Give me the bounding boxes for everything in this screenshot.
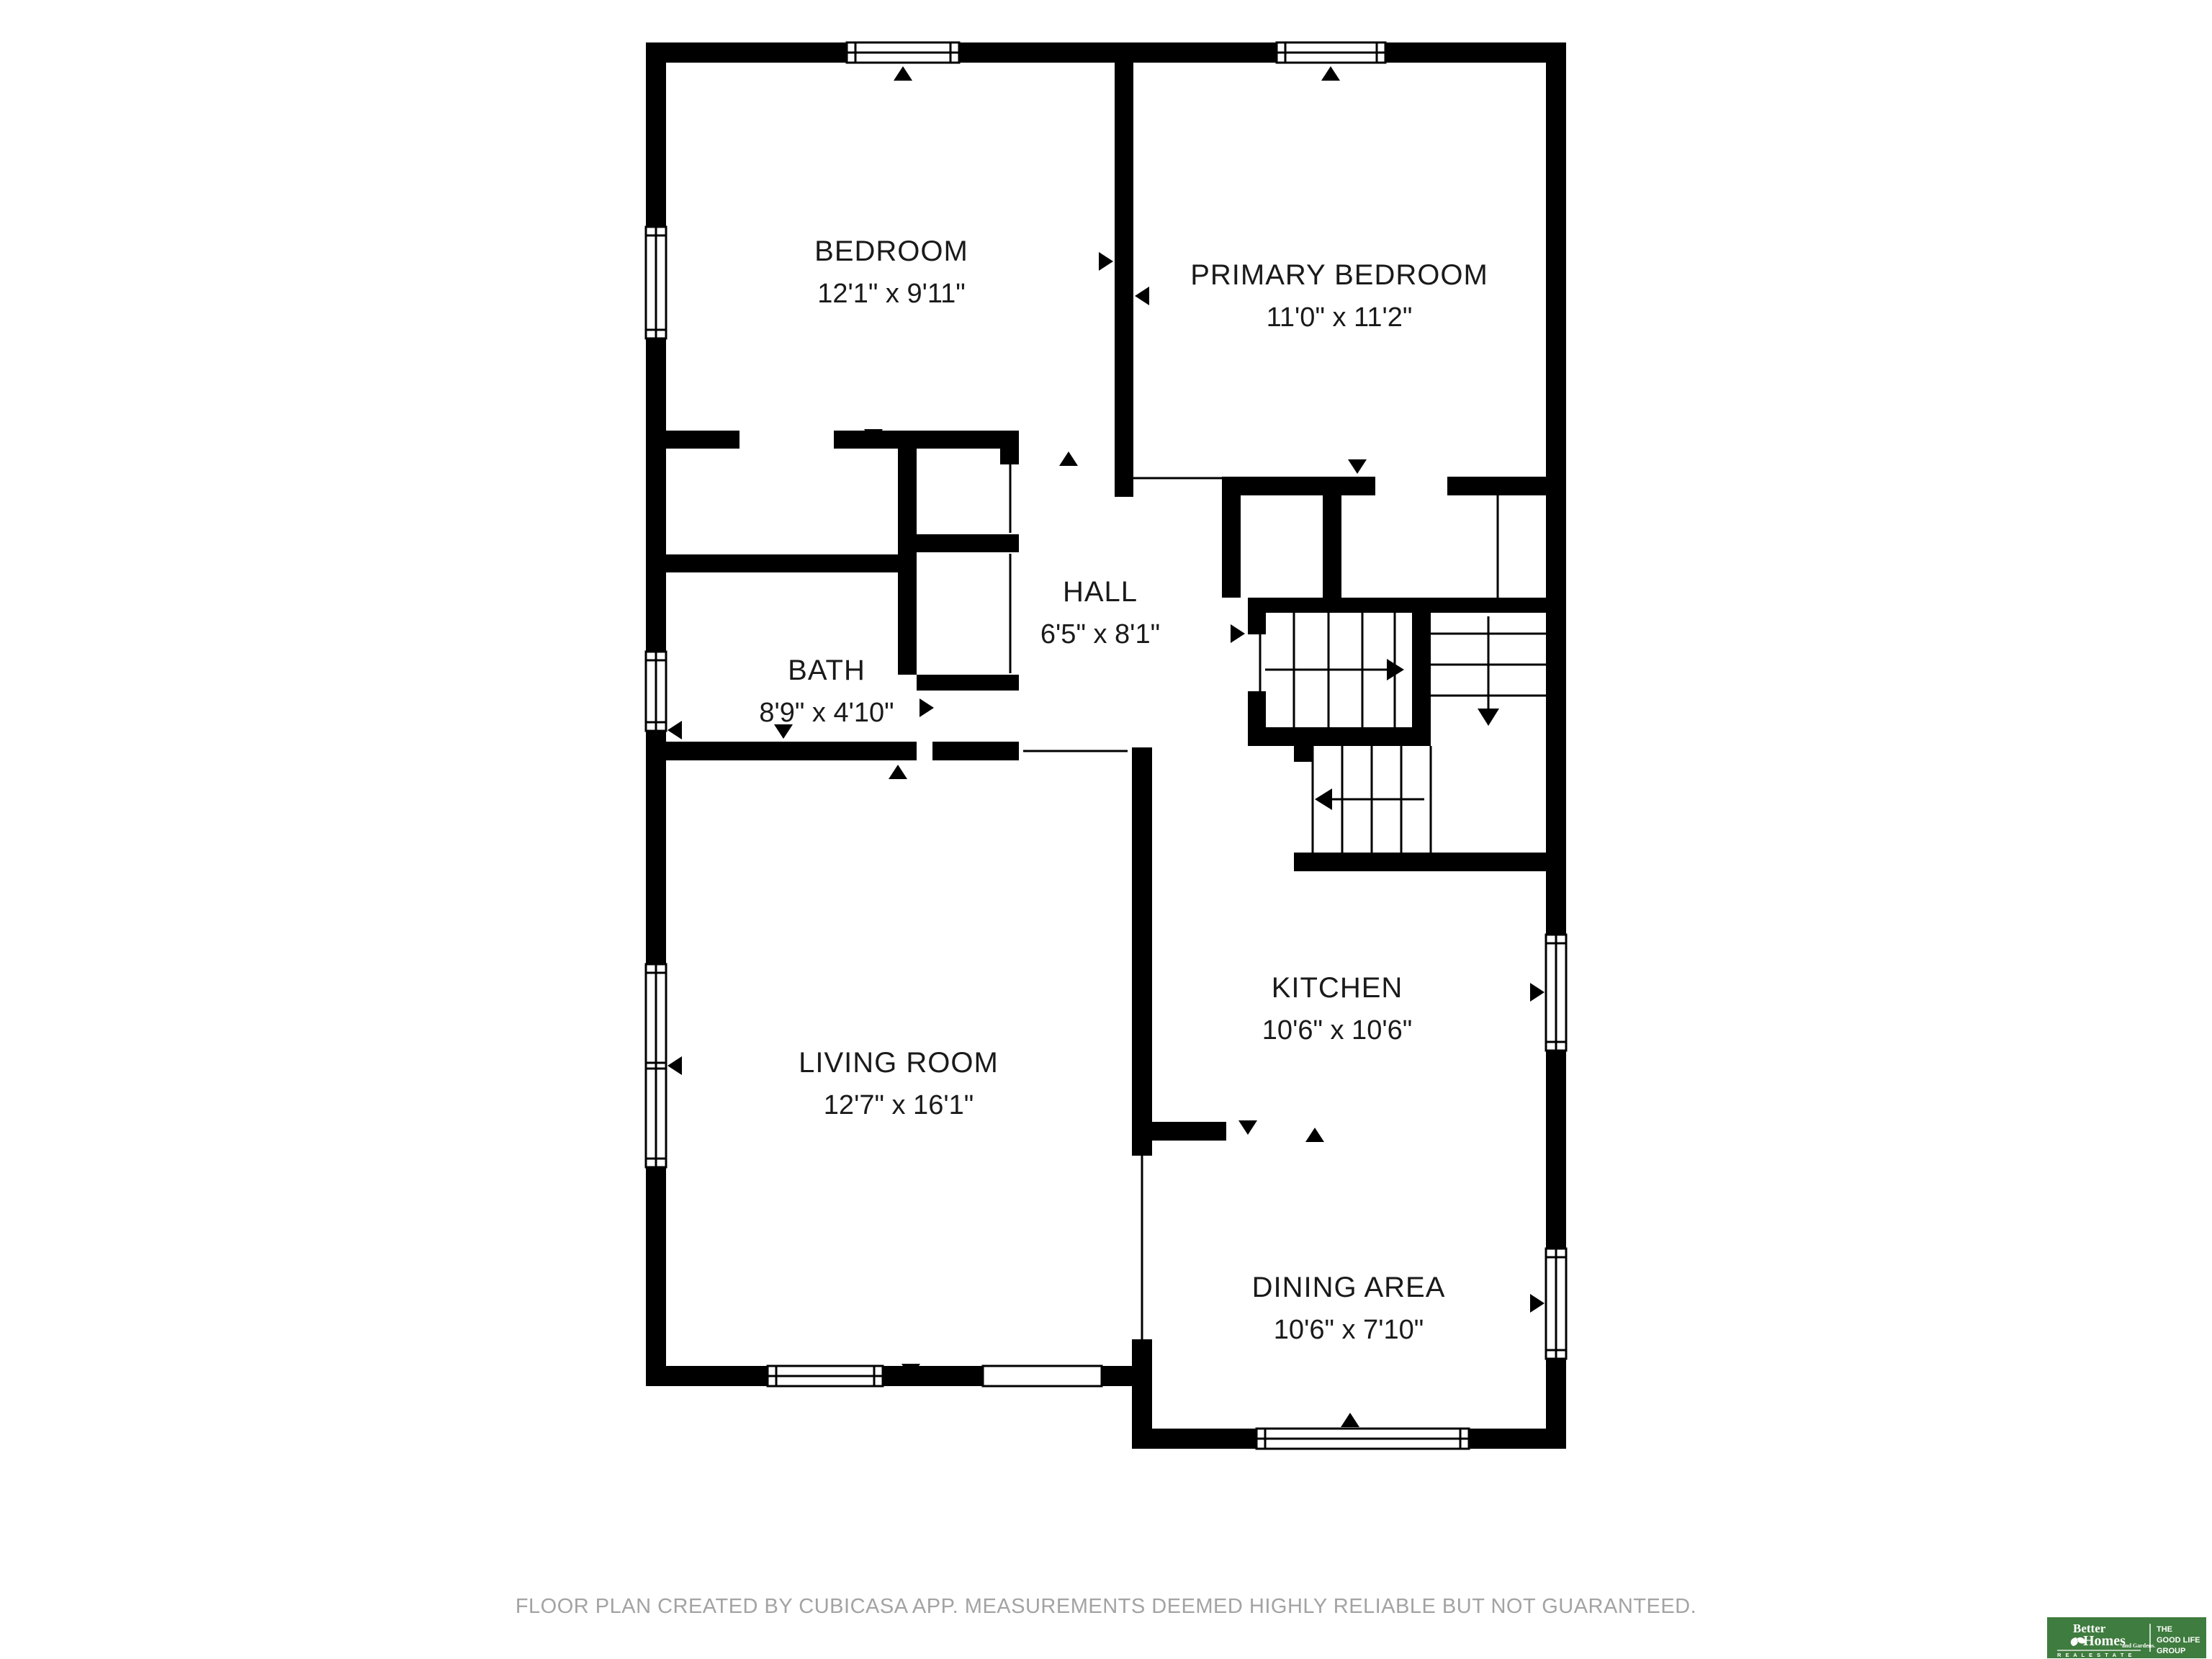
room-name: DINING AREA [1252,1272,1446,1303]
room-label-hall: HALL 6'5" x 8'1" [1040,576,1160,649]
door-marker-icon [1530,1294,1545,1313]
footer-disclaimer: FLOOR PLAN CREATED BY CUBICASA APP. MEAS… [516,1595,1696,1618]
door-marker-icon [667,721,682,739]
door-marker-icon [1348,459,1367,474]
door-marker-icon [1059,451,1078,466]
room-label-bedroom: BEDROOM 12'1" x 9'11" [814,235,968,309]
door-marker-icon [1238,1120,1257,1135]
stairs-up-flight [1260,612,1404,727]
window-bottom-living [768,1366,883,1386]
window-bottom-living-wide [983,1366,1102,1386]
room-name: KITCHEN [1272,972,1403,1004]
window-right-kitchen [1546,935,1566,1051]
window-right-dining [1546,1249,1566,1359]
logo-brand-line2: Homes [2083,1633,2126,1649]
room-label-primary-bedroom: PRIMARY BEDROOM 11'0" x 11'2" [1190,259,1488,333]
room-label-kitchen: KITCHEN 10'6" x 10'6" [1262,972,1412,1046]
room-label-living-room: LIVING ROOM 12'7" x 16'1" [799,1047,999,1120]
door-marker-icon [1231,624,1245,643]
door-marker-icon [889,765,907,779]
stairs-left-arrow-icon [1315,788,1332,810]
door-marker-icon [920,698,934,717]
window-top-bedroom [847,42,959,63]
brand-logo: Better Homes and Gardens. R E A L E S T … [2047,1617,2206,1658]
door-marker-icon [1321,66,1340,81]
window-left-living-double [646,964,666,1167]
door-marker-icon [1341,1413,1359,1427]
room-dimensions: 11'0" x 11'2" [1267,302,1413,333]
window-top-primary [1277,42,1385,63]
door-marker-icon [1099,252,1113,271]
logo-group-line2: GOOD LIFE [2157,1636,2200,1645]
stairs-down-upper-flight [1431,616,1546,726]
window-left-bath [646,652,666,731]
room-name: HALL [1063,576,1138,608]
stairs-lower-flight [1313,746,1431,853]
window-left-bedroom [646,227,666,338]
door-marker-icon [894,66,912,81]
stairs-down-arrow-icon [1478,709,1499,726]
room-name: BEDROOM [814,235,968,267]
room-dimensions: 12'7" x 16'1" [824,1090,974,1120]
door-marker-icon [667,1056,682,1075]
logo-brand-tagline: R E A L E S T A T E [2057,1652,2134,1658]
window-bottom-dining [1256,1429,1469,1449]
floorplan-canvas: BEDROOM 12'1" x 9'11" PRIMARY BEDROOM 11… [0,0,2212,1659]
room-label-dining-area: DINING AREA 10'6" x 7'10" [1252,1272,1446,1345]
room-label-bath: BATH 8'9" x 4'10" [759,655,894,728]
room-name: BATH [788,655,866,686]
logo-group-line3: GROUP [2157,1647,2185,1655]
room-dimensions: 10'6" x 10'6" [1262,1015,1412,1046]
door-marker-icon [1305,1128,1324,1142]
logo-group-line1: THE [2157,1625,2172,1634]
room-dimensions: 6'5" x 8'1" [1040,619,1160,649]
room-dimensions: 12'1" x 9'11" [817,279,966,309]
door-marker-icon [1135,287,1149,305]
room-name: PRIMARY BEDROOM [1190,259,1488,291]
room-dimensions: 8'9" x 4'10" [759,698,894,728]
door-marker-icon [1530,983,1545,1002]
room-dimensions: 10'6" x 7'10" [1274,1315,1424,1345]
room-name: LIVING ROOM [799,1047,999,1079]
